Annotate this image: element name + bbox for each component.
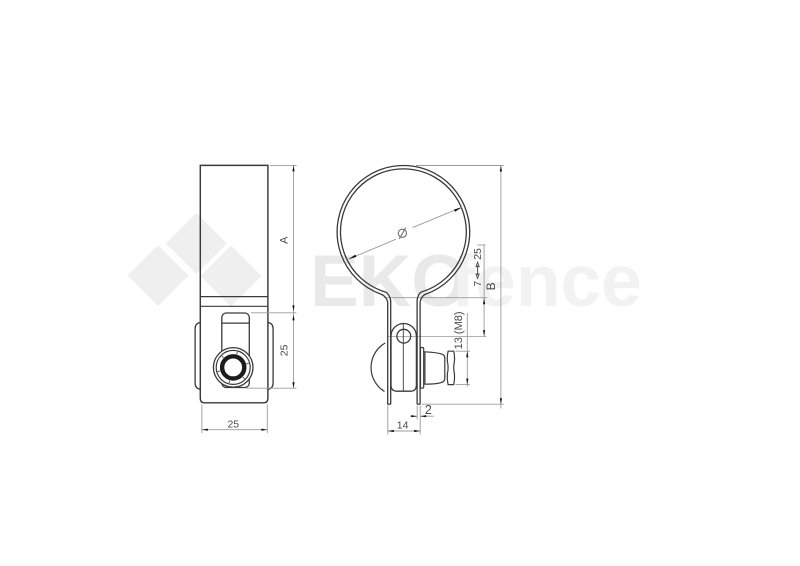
svg-text:13 (M8): 13 (M8)	[453, 311, 465, 349]
svg-text:14: 14	[397, 419, 409, 431]
svg-text:25: 25	[278, 344, 290, 356]
svg-text:B: B	[484, 282, 498, 290]
svg-text:25: 25	[227, 418, 239, 430]
svg-text:25: 25	[472, 248, 484, 260]
svg-text:2: 2	[425, 403, 432, 417]
svg-text:7: 7	[472, 281, 484, 287]
svg-text:A: A	[279, 236, 291, 244]
svg-text:EKO: EKO	[310, 241, 468, 322]
